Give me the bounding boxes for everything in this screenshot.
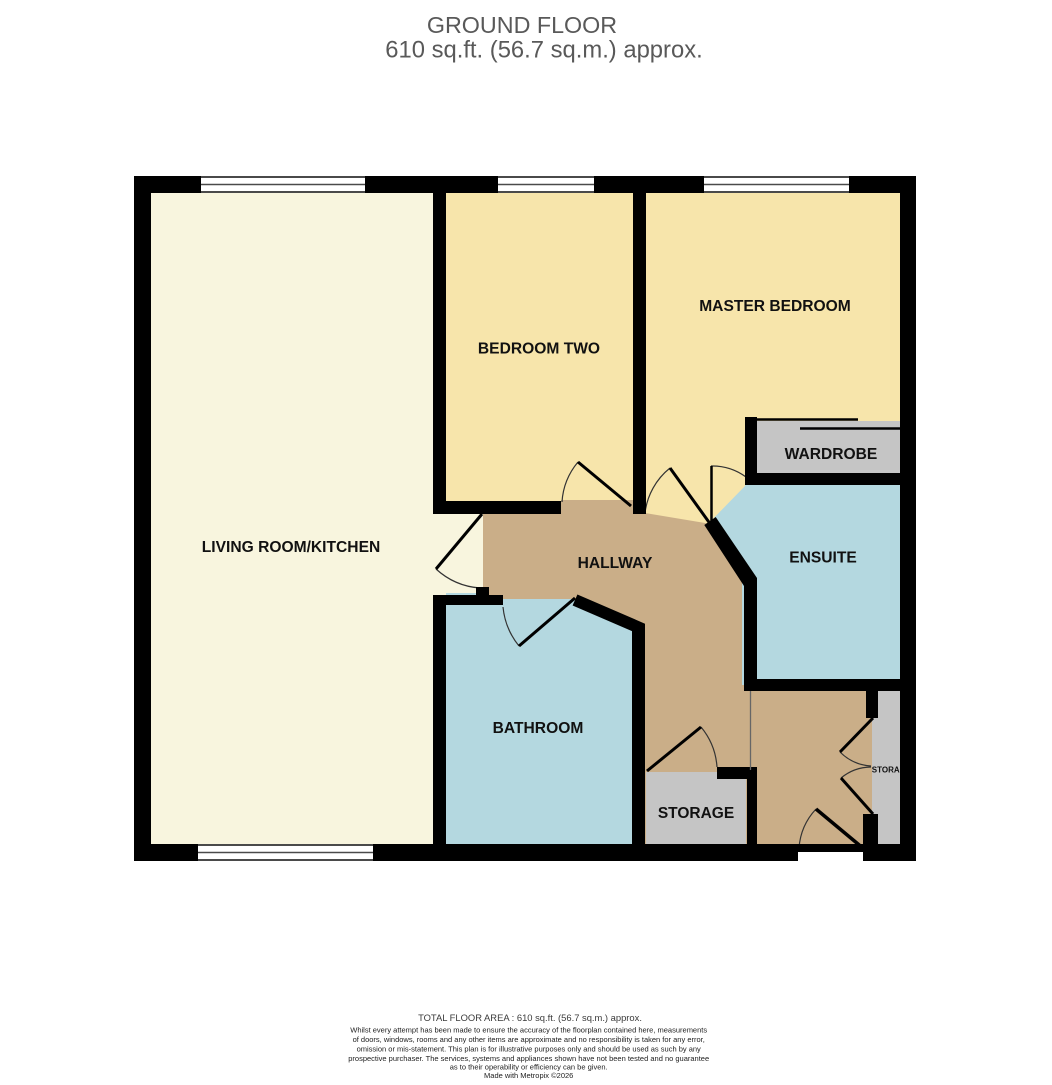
- svg-text:GROUND FLOOR: GROUND FLOOR: [427, 12, 617, 38]
- svg-text:ENSUITE: ENSUITE: [789, 550, 857, 567]
- svg-text:prospective purchaser. The ser: prospective purchaser. The services, sys…: [348, 1054, 709, 1063]
- svg-text:MASTER BEDROOM: MASTER BEDROOM: [699, 298, 851, 315]
- svg-text:LIVING ROOM/KITCHEN: LIVING ROOM/KITCHEN: [202, 539, 380, 556]
- svg-text:of doors, windows, rooms and a: of doors, windows, rooms and any other i…: [353, 1035, 705, 1044]
- svg-text:omission or mis-statement. Thi: omission or mis-statement. This plan is …: [357, 1044, 701, 1053]
- svg-text:STORAGE: STORAGE: [658, 805, 734, 822]
- svg-text:BEDROOM TWO: BEDROOM TWO: [478, 341, 600, 358]
- svg-text:WARDROBE: WARDROBE: [785, 446, 878, 463]
- svg-text:Whilst every attempt has been: Whilst every attempt has been made to en…: [350, 1025, 707, 1034]
- svg-text:Made with Metropix ©2026: Made with Metropix ©2026: [484, 1071, 573, 1080]
- svg-text:HALLWAY: HALLWAY: [578, 555, 653, 572]
- svg-text:610 sq.ft. (56.7 sq.m.) approx: 610 sq.ft. (56.7 sq.m.) approx.: [385, 37, 702, 64]
- svg-text:TOTAL FLOOR AREA : 610 sq.ft.: TOTAL FLOOR AREA : 610 sq.ft. (56.7 sq.m…: [418, 1012, 642, 1023]
- svg-text:BATHROOM: BATHROOM: [493, 720, 584, 737]
